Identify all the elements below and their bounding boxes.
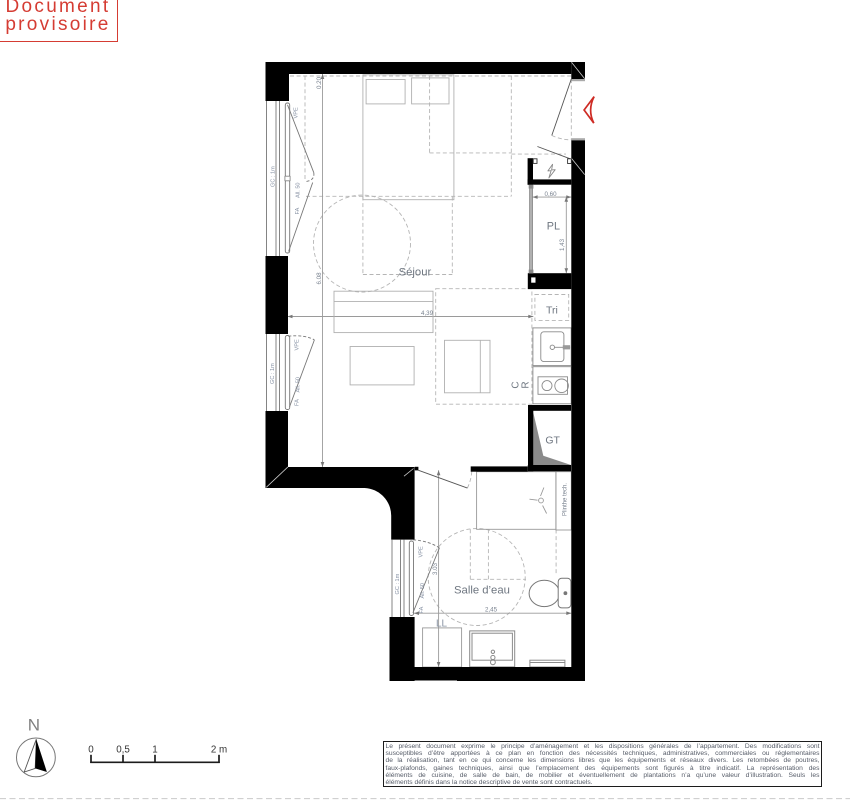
svg-text:LL: LL [436, 619, 448, 630]
svg-text:R: R [521, 381, 532, 388]
svg-text:2,45: 2,45 [485, 607, 498, 614]
svg-text:All. 50: All. 50 [420, 583, 426, 599]
svg-text:4,39: 4,39 [421, 310, 434, 317]
svg-text:GC : 1m: GC : 1m [395, 573, 401, 594]
svg-text:FA: FA [295, 399, 301, 406]
svg-text:All. 50: All. 50 [296, 377, 302, 393]
svg-text:Salle d’eau: Salle d’eau [454, 585, 510, 597]
svg-text:VPE: VPE [419, 546, 425, 557]
svg-text:GC : 1m: GC : 1m [271, 166, 277, 187]
svg-text:GC : 1m: GC : 1m [270, 363, 276, 384]
svg-text:0,60: 0,60 [545, 191, 558, 198]
svg-text:3.03: 3.03 [432, 562, 439, 575]
svg-text:Séjour: Séjour [399, 266, 432, 278]
svg-text:0,5: 0,5 [116, 744, 130, 755]
svg-text:0.20: 0.20 [316, 76, 323, 89]
svg-text:GT: GT [545, 434, 560, 446]
svg-text:1: 1 [152, 744, 157, 755]
svg-text:2 m: 2 m [211, 744, 227, 755]
svg-text:0: 0 [88, 744, 94, 755]
svg-text:VPE: VPE [295, 339, 301, 350]
svg-text:PL: PL [547, 221, 560, 233]
svg-text:N: N [28, 716, 40, 735]
svg-text:Plinthe tech.: Plinthe tech. [563, 483, 569, 516]
svg-text:1,43: 1,43 [559, 238, 566, 251]
svg-text:Tri: Tri [546, 304, 558, 316]
svg-text:6.08: 6.08 [316, 272, 323, 285]
svg-text:All. 50: All. 50 [296, 182, 302, 198]
svg-text:VPE: VPE [294, 107, 300, 118]
svg-text:FA: FA [295, 207, 301, 214]
svg-text:FA: FA [419, 606, 425, 613]
